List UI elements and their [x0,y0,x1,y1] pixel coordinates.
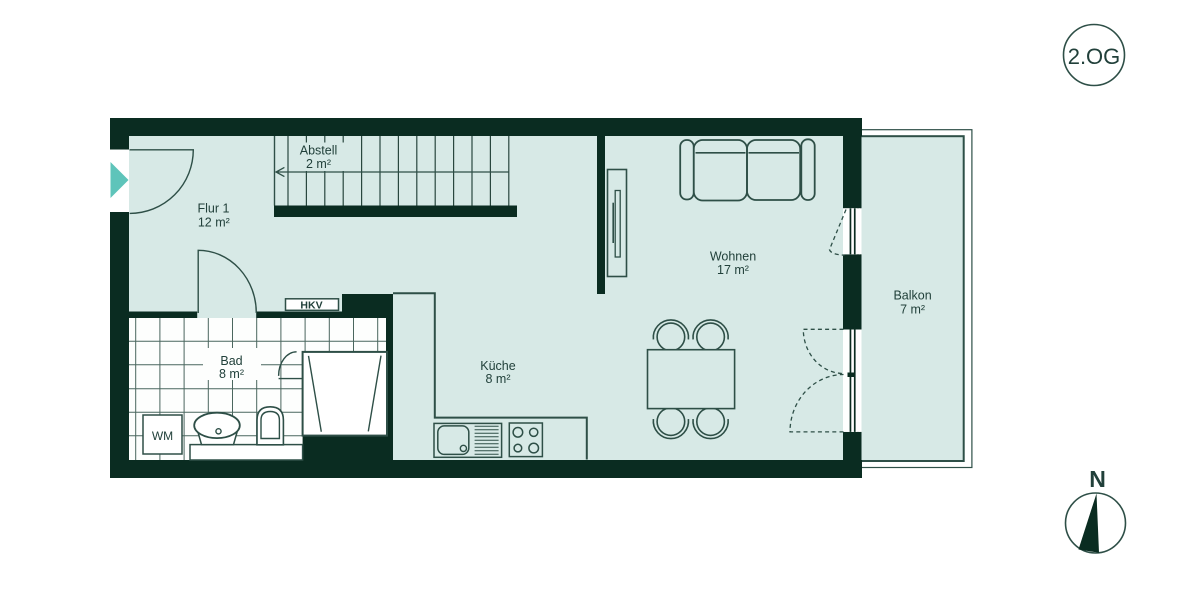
svg-text:N: N [1089,466,1106,492]
svg-text:WM: WM [152,429,173,443]
svg-text:2 m²: 2 m² [306,157,331,171]
svg-text:Bad: Bad [220,354,242,368]
svg-text:17 m²: 17 m² [717,263,749,277]
svg-text:Flur 1: Flur 1 [198,202,230,216]
svg-text:8 m²: 8 m² [219,367,244,381]
svg-text:12 m²: 12 m² [198,215,230,229]
svg-text:Küche: Küche [480,359,515,373]
svg-text:HKV: HKV [300,300,322,312]
svg-text:Wohnen: Wohnen [710,249,756,263]
svg-text:Abstell: Abstell [300,144,338,158]
svg-text:Balkon: Balkon [893,289,931,303]
svg-text:7 m²: 7 m² [900,302,925,316]
svg-text:2.OG: 2.OG [1068,44,1121,69]
svg-text:8 m²: 8 m² [486,372,511,386]
